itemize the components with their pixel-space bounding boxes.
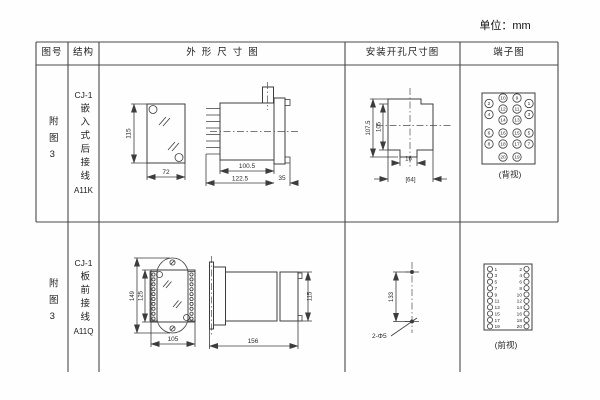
terminal-pin: 11	[487, 298, 499, 304]
terminal-pin: 12	[499, 105, 507, 113]
glass-hatch-icon	[168, 142, 179, 151]
terminal-pin: 8	[519, 286, 529, 292]
terminal-pin: 20	[499, 153, 507, 161]
terminal-pin: 2	[485, 99, 493, 107]
pin-number: 16	[500, 131, 506, 137]
pin-number: 19	[514, 155, 520, 161]
pin-number: 3	[495, 273, 498, 279]
pin-number: 12	[500, 107, 506, 113]
fig-number-text: 附图3	[47, 116, 57, 167]
unit-label: 单位：mm	[445, 21, 565, 32]
terminal-strip-right	[190, 273, 193, 320]
terminal-strip-left	[152, 273, 155, 320]
terminal-pin: 4	[485, 110, 493, 118]
terminal-pin: 1	[525, 99, 533, 107]
pin-number: 8	[488, 142, 491, 148]
glass-hatch-icon	[159, 117, 170, 126]
dim-cutout-notch: 16	[405, 157, 412, 163]
dim-total-length: 156	[248, 338, 259, 345]
model-text: CJ-1	[75, 259, 93, 268]
pin-number: 12	[517, 299, 523, 305]
dim-cutout-inner: 105	[377, 121, 383, 132]
pin-number: 8	[519, 286, 522, 292]
row2-holes-view: 133 2-Φ5	[372, 262, 419, 340]
terminal-pin: 17	[513, 140, 521, 148]
dim-flange: 35	[278, 175, 286, 182]
terminal-pin: 14	[517, 305, 529, 311]
dim-side-height: 115	[308, 291, 314, 301]
view-label-front: (前视)	[495, 340, 518, 350]
terminal-pin: 12	[517, 298, 529, 304]
terminal-pin: 2	[519, 266, 529, 272]
terminal-pin: 9	[513, 94, 521, 102]
row1-structure-label: CJ-1 嵌入式后接线 A11K	[68, 91, 99, 195]
pin-number: 2	[488, 101, 491, 107]
header-mounting: 安装开孔尺寸图	[345, 47, 460, 59]
pin-number: 13	[495, 305, 501, 311]
terminal-pin: 6	[485, 129, 493, 137]
dim-cutout-width: [64]	[405, 178, 415, 184]
terminal-pin: 3	[487, 273, 497, 279]
row1-front-view: 115 72	[126, 104, 186, 180]
row1-terminal-diagram: 10 9 2 1 12 11 4 3 14 13 16 15 6 5 18 17…	[482, 93, 535, 180]
pin-number: 4	[519, 273, 522, 279]
glass-hatch-icon	[173, 301, 182, 309]
mounting-hole	[410, 270, 414, 274]
row2-fig-label: 附图3	[36, 278, 68, 329]
header-terminal: 端子图	[460, 47, 558, 59]
terminal-pin: 17	[487, 317, 500, 323]
pin-number: 3	[528, 112, 531, 118]
dim-outer-height: 149	[130, 290, 136, 301]
pin-number: 11	[495, 299, 500, 305]
header-outline: 外形尺寸图	[99, 47, 345, 59]
terminal-pin: 10	[517, 292, 529, 298]
pin-number: 11	[515, 107, 520, 113]
latch-circle	[184, 315, 190, 321]
hole-callout: 2-Φ5	[372, 333, 387, 340]
pin-number: 17	[514, 142, 520, 148]
pin-number: 20	[517, 324, 523, 330]
row2-front-view: 149 125 105	[130, 258, 195, 347]
terminal-pin: 4	[519, 273, 529, 279]
pin-number: 1	[528, 101, 531, 107]
terminal-pin: 13	[513, 116, 521, 124]
terminal-pin: 20	[517, 324, 529, 330]
dim-inner-height: 125	[139, 290, 145, 301]
pin-number: 19	[495, 324, 501, 330]
model-text: CJ-1	[75, 91, 93, 100]
code-text: A11K	[74, 187, 93, 195]
pin-number: 5	[495, 280, 498, 286]
terminal-pin: 11	[513, 105, 521, 113]
terminal-pin: 13	[487, 305, 500, 311]
table-grid	[36, 42, 558, 372]
terminal-pin: 7	[525, 140, 533, 148]
terminal-pin: 5	[525, 129, 533, 137]
dim-hole-spacing: 133	[389, 291, 395, 302]
terminal-pin: 14	[499, 116, 507, 124]
pin-number: 1	[495, 267, 498, 273]
pin-number: 14	[517, 305, 523, 311]
terminal-pin: 3	[525, 110, 533, 118]
header-structure: 结构	[68, 47, 99, 59]
pin-number: 6	[488, 131, 491, 137]
terminal-pin: 18	[499, 140, 507, 148]
pin-number: 18	[517, 318, 523, 324]
terminal-pin: 7	[487, 286, 497, 292]
pin-number: 14	[500, 118, 506, 124]
pin-number: 2	[519, 267, 522, 273]
pin-number: 9	[516, 96, 519, 102]
latch-circle	[149, 106, 157, 114]
row2-side-view: 115 156	[210, 256, 314, 349]
mount-type-text: 嵌入式后接线	[79, 103, 89, 184]
technical-drawing-svg: 115 72 100.5 122.5	[0, 0, 600, 400]
pin-number: 10	[500, 96, 506, 102]
code-text: A11Q	[74, 328, 94, 336]
pin-number: 20	[500, 155, 506, 161]
pin-number: 13	[514, 118, 520, 124]
dim-front-height: 115	[126, 128, 133, 139]
row2-structure-label: CJ-1 板前接线 A11Q	[68, 259, 99, 336]
dim-cutout-outer: 107.5	[366, 120, 372, 136]
terminal-pin: 18	[517, 317, 529, 323]
terminal-pin: 19	[513, 153, 521, 161]
pin-number: 17	[495, 318, 501, 324]
header-fig-no: 图号	[36, 47, 68, 59]
pin-number: 5	[528, 131, 531, 137]
pin-number: 9	[495, 292, 498, 298]
manual-page: 115 72 100.5 122.5	[0, 0, 600, 400]
terminal-pin: 9	[487, 292, 497, 298]
dim-total-length: 122.5	[232, 176, 249, 183]
glass-hatch-icon	[163, 281, 172, 289]
dim-width: 105	[168, 336, 179, 343]
row1-side-view: 100.5 122.5 35	[206, 82, 298, 186]
terminal-pin: 15	[513, 129, 521, 137]
latch-circle	[175, 154, 183, 162]
view-label-rear: (背视)	[499, 170, 522, 180]
terminal-pin: 8	[485, 140, 493, 148]
dim-body-length: 100.5	[239, 163, 256, 170]
row1-cutout-view: 107.5 105 16 [64]	[366, 88, 452, 184]
pin-number: 15	[495, 311, 501, 317]
terminal-pin: 5	[487, 279, 497, 285]
dim-front-width: 72	[162, 169, 170, 176]
pin-number: 7	[528, 142, 531, 148]
pin-number: 10	[517, 292, 523, 298]
pin-number: 15	[514, 131, 520, 137]
mount-type-text: 板前接线	[79, 271, 89, 325]
pin-number: 7	[495, 286, 498, 292]
terminal-pin: 6	[519, 279, 529, 285]
terminal-pin: 19	[487, 324, 500, 330]
terminal-pin: 16	[499, 129, 507, 137]
pin-number: 4	[488, 112, 491, 118]
pin-number: 6	[519, 280, 522, 286]
pin-number: 18	[500, 142, 506, 148]
row2-terminal-diagram: 1 3 5 7 9 11 13 15 17 19 2 4 6 8 10 12 1…	[484, 264, 532, 350]
pin-number: 16	[517, 311, 523, 317]
row1-fig-label: 附图3	[36, 116, 68, 167]
fig-number-text: 附图3	[47, 278, 57, 329]
terminal-pin: 15	[487, 311, 500, 317]
terminal-pin: 16	[517, 311, 529, 317]
terminal-pin: 10	[499, 94, 507, 102]
terminal-pin: 1	[487, 266, 497, 272]
